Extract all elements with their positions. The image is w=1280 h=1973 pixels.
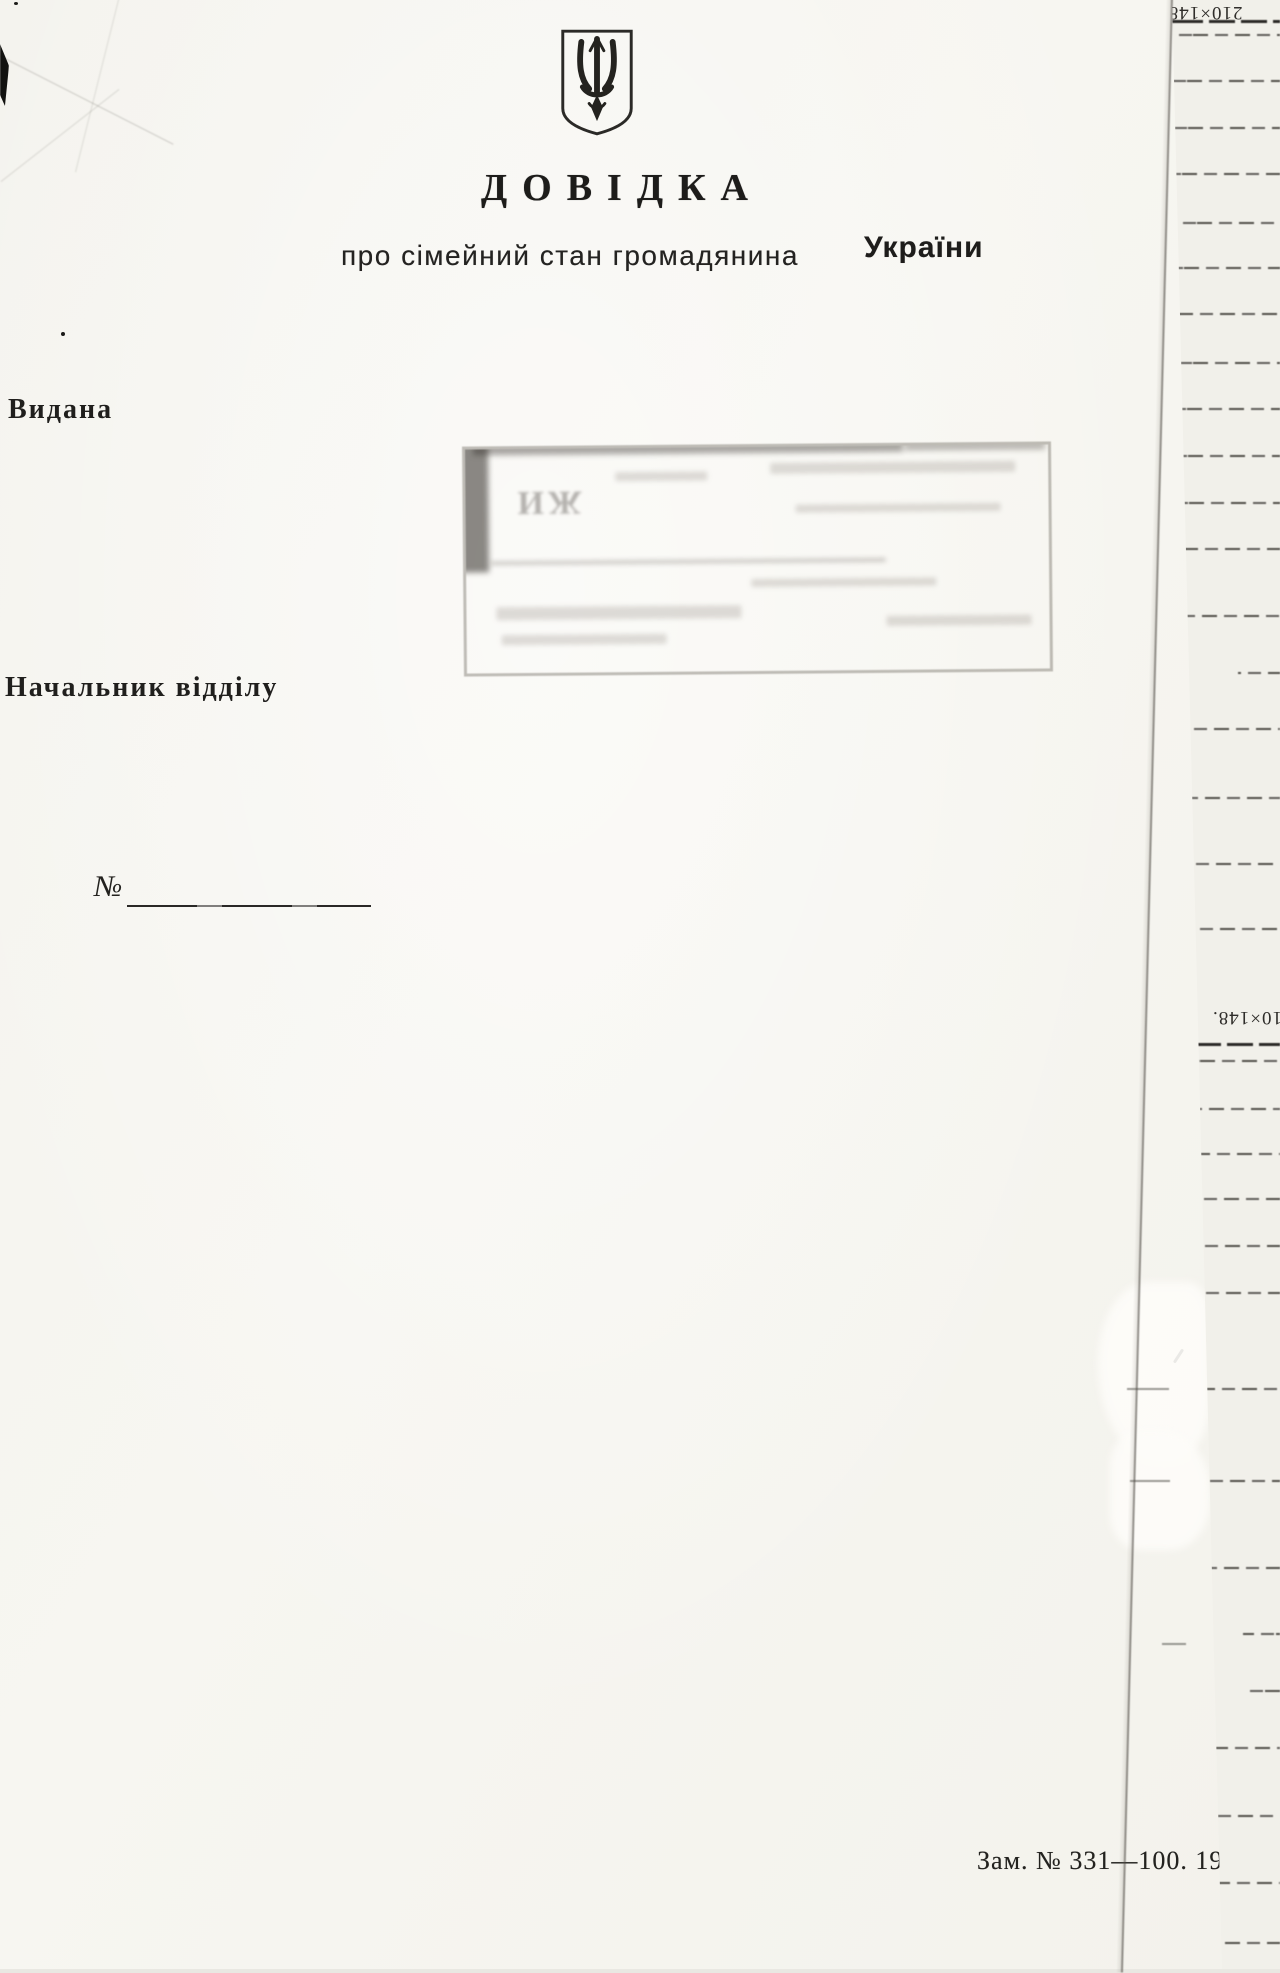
ruled-dashed-line	[1243, 1633, 1280, 1635]
paper-tear-mark	[0, 44, 9, 106]
ruled-dashed-line	[1243, 1690, 1280, 1692]
ruled-dashed-line	[1160, 127, 1280, 129]
pencil-dash-mark	[1130, 1480, 1170, 1482]
stamp-ink-blot	[462, 441, 489, 572]
stamp-ink-smudge	[887, 615, 1032, 626]
document-title: ДОВІДКА	[481, 166, 763, 210]
paper-crease	[75, 0, 122, 172]
pencil-dash-mark	[1162, 1643, 1186, 1645]
ruled-dashed-line	[1160, 222, 1280, 224]
stamp-ink-smudge	[796, 503, 1001, 513]
number-label: №	[94, 870, 122, 904]
ruled-dashed-line	[1160, 34, 1280, 36]
ruled-dashed-line	[1160, 173, 1280, 175]
stamp-ink-smudge	[473, 441, 903, 455]
ukraine-trident-emblem	[553, 26, 641, 138]
paper-size-marking-middle: 210×148.	[1212, 1006, 1280, 1028]
certificate-sheet: ДОВІДКА про сімейний стан громадянина Ук…	[0, 0, 1280, 1969]
stamp-ink-smudge	[491, 558, 886, 565]
stamp-ink-smudge	[751, 577, 936, 587]
faint-ink-stamp: ЖИ	[462, 441, 1053, 676]
department-head-label: Начальник відділу	[5, 672, 278, 704]
ruled-dashed-line	[1160, 80, 1280, 82]
document-subtitle: про сімейний стан громадянина	[341, 240, 799, 272]
stamp-ink-smudge	[502, 634, 667, 645]
ink-speck	[14, 2, 18, 5]
stamp-ink-smudge	[496, 605, 741, 620]
stamp-ink-smudge	[770, 461, 1015, 474]
ruled-dashed-line	[1238, 672, 1280, 674]
number-fill-in-line	[127, 905, 371, 907]
stamp-text-fragment: ЖИ	[513, 483, 581, 522]
paper-size-marking-top: 210×148.	[1162, 1, 1242, 23]
ink-speck	[61, 332, 65, 336]
paper-tear-patch	[1110, 1430, 1210, 1550]
paper-crease	[0, 46, 174, 144]
issued-to-label: Видана	[8, 394, 113, 426]
paper-crease	[1, 89, 120, 182]
stamp-ink-smudge	[615, 471, 707, 481]
print-order-imprint: Зам. № 331—100. 19	[977, 1846, 1223, 1876]
country-name: України	[864, 231, 984, 265]
stamp-ink-smudge	[905, 441, 1045, 450]
